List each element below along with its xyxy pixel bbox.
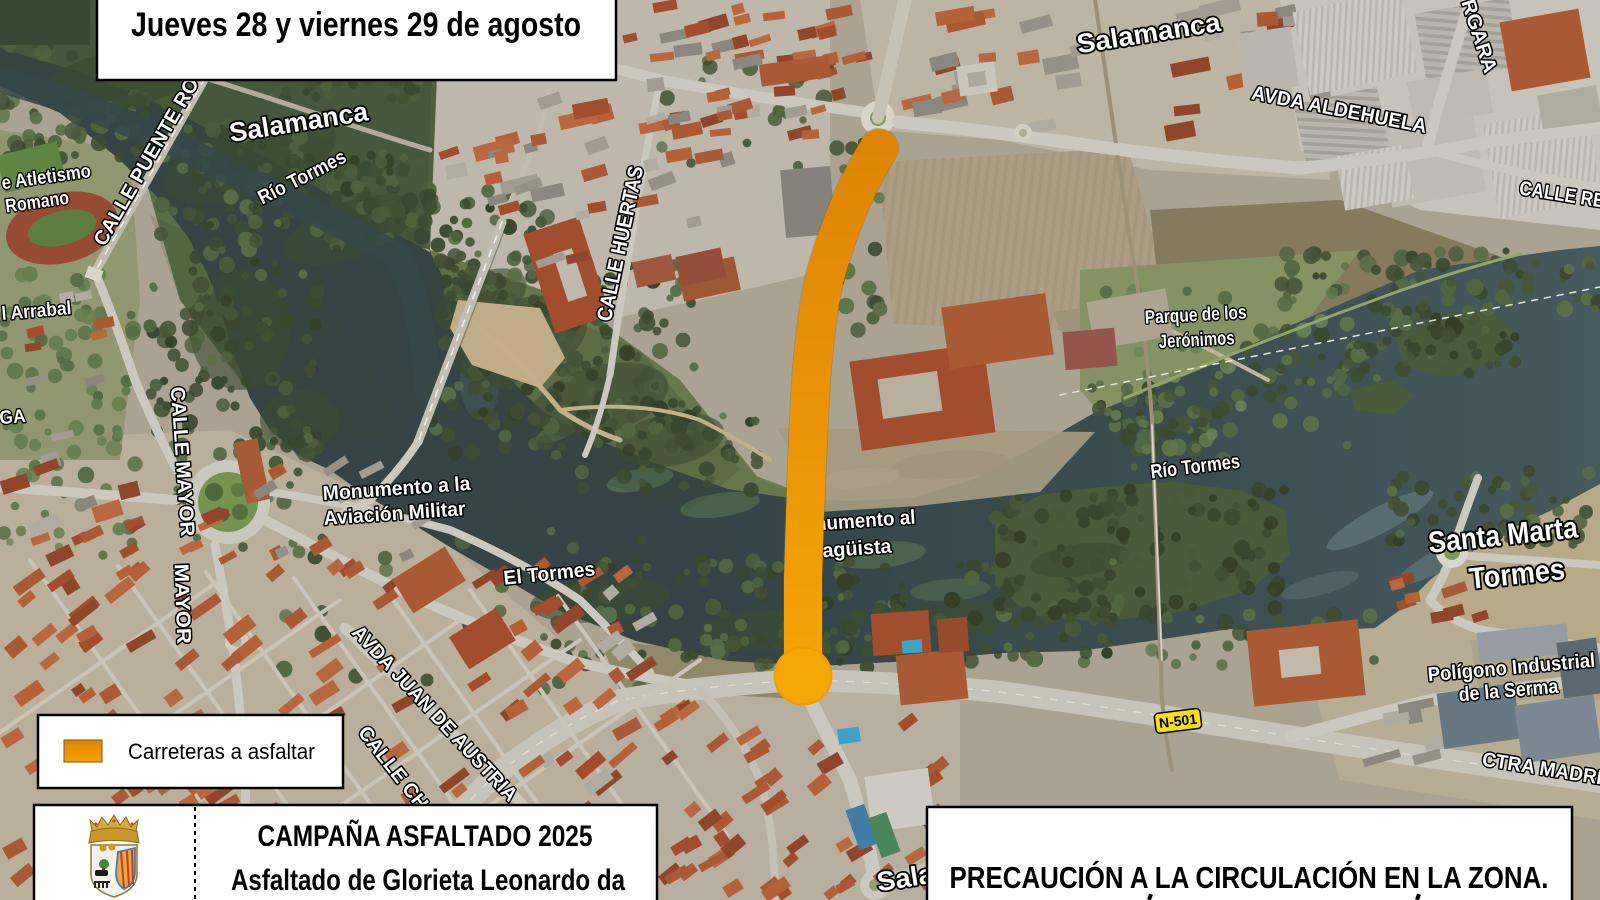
svg-text:GA: GA xyxy=(0,406,27,429)
svg-text:Carreteras a asfaltar: Carreteras a asfaltar xyxy=(128,739,315,764)
svg-text:MAYOR: MAYOR xyxy=(170,563,195,644)
svg-text:Jueves 28 y viernes 29 de agos: Jueves 28 y viernes 29 de agosto xyxy=(131,6,581,44)
svg-text:CAMPAÑA ASFALTADO 2025: CAMPAÑA ASFALTADO 2025 xyxy=(258,819,593,853)
svg-text:Jerónimos: Jerónimos xyxy=(1158,328,1235,353)
svg-text:Asfaltado de Glorieta Leonardo: Asfaltado de Glorieta Leonardo da xyxy=(231,864,625,897)
svg-text:PRECAUCIÓN A LA CIRCULACIÓN EN: PRECAUCIÓN A LA CIRCULACIÓN EN LA ZONA. xyxy=(950,859,1549,895)
